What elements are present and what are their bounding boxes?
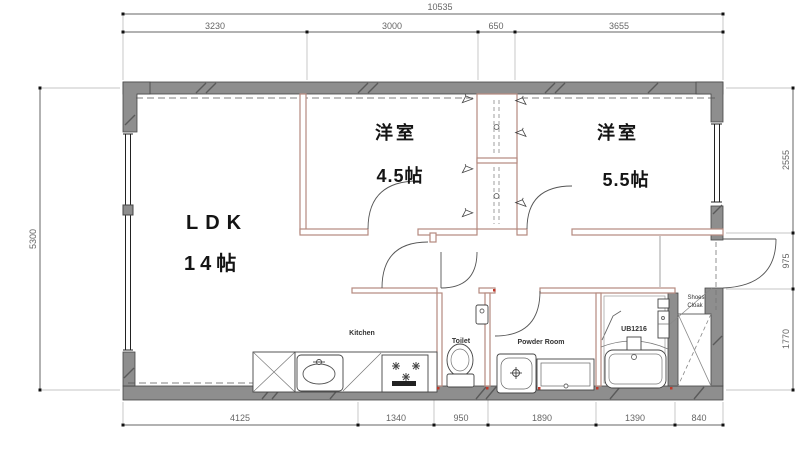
door-arc-entrance — [723, 239, 776, 288]
window-right — [711, 124, 722, 202]
room-labels: LDK 14帖 洋室 4.5帖 洋室 5.5帖 — [184, 122, 650, 275]
kitchen-fixtures — [253, 352, 437, 392]
door-arc-bedroom-a — [368, 181, 418, 229]
hand-basin-icon — [476, 305, 488, 324]
burner-icon — [402, 373, 410, 381]
room-label-bedroom-a: 洋室 — [375, 122, 417, 143]
bath-stool — [627, 337, 641, 350]
dim-top-total: 10535 — [427, 2, 452, 12]
room-label-ldk: LDK — [186, 212, 248, 234]
door-arc-hall-ldk — [382, 242, 428, 288]
dim-top-seg-2: 3000 — [382, 21, 402, 31]
hanger-icon — [460, 162, 473, 172]
fixture-labels: Kitchen Toilet Powder Room UB1216 Shoes … — [349, 295, 704, 346]
room-size-bedroom-b: 5.5帖 — [602, 169, 649, 190]
dim-bottom-seg-1: 4125 — [230, 413, 250, 423]
door-arc-powder — [495, 291, 540, 336]
toilet-icon — [447, 344, 474, 387]
bath-counter-icon — [658, 299, 669, 338]
washer-pan-icon — [537, 359, 594, 390]
stove-icon — [382, 355, 428, 392]
floorplan-canvas: 10535 3230 3000 650 3655 4125 1340 950 1… — [0, 0, 800, 468]
label-shoes: Shoes — [687, 295, 704, 301]
vanity-icon — [497, 354, 536, 393]
label-kitchen: Kitchen — [349, 330, 375, 337]
dim-top-seg-4: 3655 — [609, 21, 629, 31]
dim-top-seg-1: 3230 — [205, 21, 225, 31]
door-arc-toilet — [441, 252, 477, 288]
toilet-fixtures — [447, 305, 488, 387]
hanger-icon — [460, 206, 473, 216]
dim-top-seg-3: 650 — [488, 21, 503, 31]
door-fold-bath — [602, 311, 621, 340]
room-size-bedroom-a: 4.5帖 — [376, 165, 423, 186]
dim-right-seg-3: 1770 — [781, 329, 791, 349]
label-cloak: Cloak — [687, 303, 703, 309]
label-powder-room: Powder Room — [517, 339, 564, 346]
bath-fixtures — [601, 296, 669, 388]
floorplan-page: 10535 3230 3000 650 3655 4125 1340 950 1… — [0, 0, 800, 468]
dim-right-seg-2: 975 — [781, 253, 791, 268]
dim-bottom-seg-6: 840 — [691, 413, 706, 423]
interior-walls — [300, 94, 723, 386]
window-left — [123, 134, 133, 350]
label-toilet: Toilet — [452, 338, 471, 345]
dim-left-total: 5300 — [28, 229, 38, 249]
dim-bottom-seg-2: 1340 — [386, 413, 406, 423]
room-size-ldk: 14帖 — [184, 252, 241, 275]
powder-fixtures — [497, 354, 594, 393]
label-unit-bath: UB1216 — [621, 326, 647, 333]
burner-icon — [412, 362, 420, 370]
sink-icon — [297, 355, 343, 391]
dim-bottom-seg-4: 1890 — [532, 413, 552, 423]
dim-bottom-seg-5: 1390 — [625, 413, 645, 423]
door-arc-bedroom-b — [527, 186, 572, 229]
dim-bottom-seg-3: 950 — [453, 413, 468, 423]
bathtub-icon — [605, 350, 666, 388]
room-label-bedroom-b: 洋室 — [597, 122, 639, 143]
burner-icon — [392, 362, 400, 370]
dim-right-seg-1: 2555 — [781, 150, 791, 170]
